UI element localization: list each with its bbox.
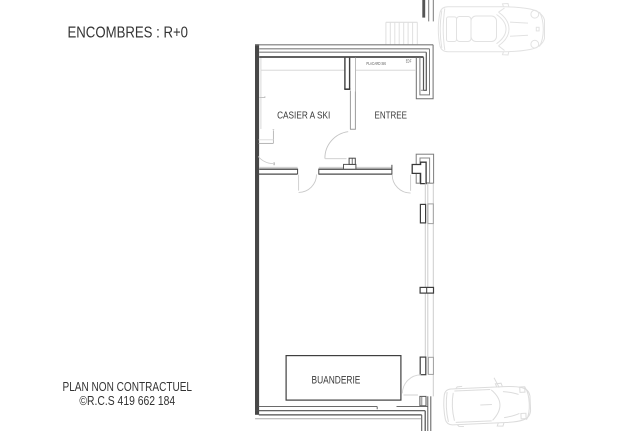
- svg-text:PLACARD SKI: PLACARD SKI: [366, 61, 386, 66]
- svg-text:ENTREE: ENTREE: [375, 111, 408, 122]
- svg-text:©R.C.S 419 662 184: ©R.C.S 419 662 184: [79, 393, 175, 408]
- svg-text:ENCOMBRES : R+0: ENCOMBRES : R+0: [68, 25, 189, 42]
- svg-text:BUANDERIE: BUANDERIE: [312, 375, 361, 387]
- svg-text:CASIER A SKI: CASIER A SKI: [277, 111, 330, 122]
- svg-text:EDF: EDF: [406, 58, 412, 63]
- svg-text:PLAN NON CONTRACTUEL: PLAN NON CONTRACTUEL: [63, 379, 193, 394]
